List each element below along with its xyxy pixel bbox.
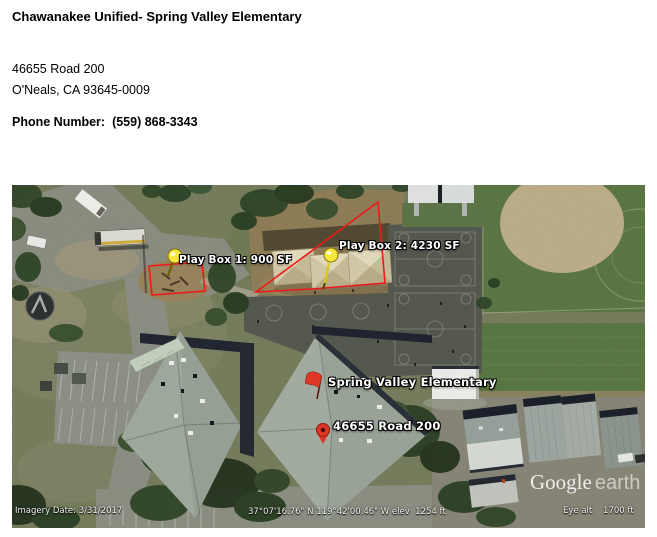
address-line-1: 46655 Road 200 bbox=[12, 62, 104, 76]
school-name-label: Spring Valley Elementary bbox=[328, 375, 497, 389]
document-page: Chawanakee Unified- Spring Valley Elemen… bbox=[0, 0, 657, 537]
street-address-label: 46655 Road 200 bbox=[333, 419, 441, 433]
coordinates-text: 37°07'16.76" N 119°42'00.46" W elev 1254… bbox=[248, 507, 446, 517]
phone-row: Phone Number:(559) 868-3343 bbox=[12, 115, 198, 129]
address-line-2: O'Neals, CA 93645-0009 bbox=[12, 83, 150, 97]
page-title: Chawanakee Unified- Spring Valley Elemen… bbox=[12, 9, 302, 24]
phone-number: (559) 868-3343 bbox=[112, 115, 197, 129]
play-box-2-label: Play Box 2: 4230 SF bbox=[339, 240, 460, 252]
eye-altitude-text: Eye alt 1700 ft bbox=[563, 506, 634, 516]
earth-logo-text: earth bbox=[595, 472, 641, 494]
phone-label: Phone Number: bbox=[12, 115, 105, 129]
google-earth-watermark: Googleearth bbox=[530, 470, 640, 495]
play-box-1-label: Play Box 1: 900 SF bbox=[179, 254, 292, 266]
imagery-date-text: Imagery Date: 3/31/2017 bbox=[15, 506, 122, 516]
satellite-map[interactable]: Play Box 1: 900 SF Play Box 2: 4230 SF S… bbox=[12, 185, 645, 528]
google-logo-text: Google bbox=[530, 470, 592, 494]
